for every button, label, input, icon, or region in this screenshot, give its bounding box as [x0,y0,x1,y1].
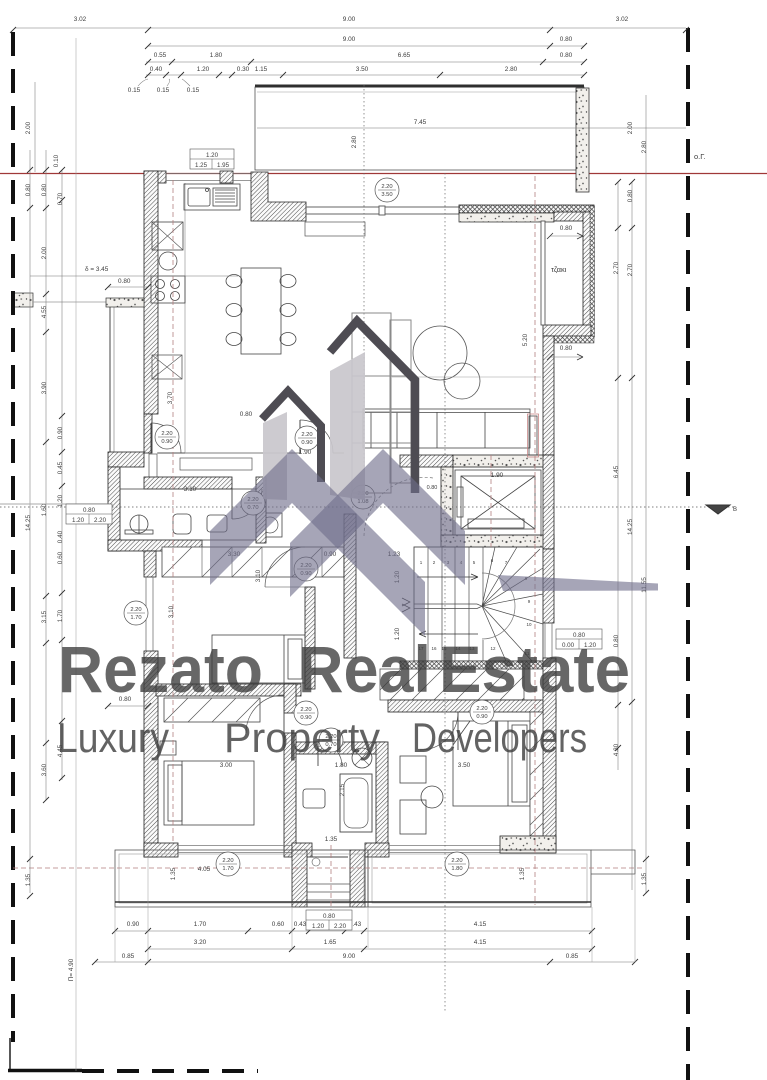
svg-text:1.95: 1.95 [217,162,230,169]
svg-text:1.20: 1.20 [206,152,219,159]
svg-text:0.55: 0.55 [154,52,167,59]
svg-text:0.80: 0.80 [560,345,573,352]
svg-text:Rezato: Rezato [58,632,263,706]
svg-text:0.80: 0.80 [560,225,573,232]
svg-text:4.15: 4.15 [474,921,487,928]
svg-text:3.50: 3.50 [356,66,369,73]
svg-text:0.80: 0.80 [627,189,634,202]
svg-text:9.00: 9.00 [343,16,356,23]
svg-text:2.15: 2.15 [339,783,346,796]
svg-text:1.20: 1.20 [312,923,325,930]
svg-text:2.20: 2.20 [451,858,462,864]
svg-text:Real: Real [298,632,431,706]
svg-text:Π= 4.90: Π= 4.90 [68,958,75,981]
svg-text:Luxury: Luxury [57,714,169,761]
svg-text:0.80: 0.80 [560,52,573,59]
svg-text:2.20: 2.20 [161,431,172,437]
svg-text:2.80: 2.80 [641,140,648,153]
svg-text:Property: Property [224,714,380,761]
svg-text:0.85: 0.85 [122,953,135,960]
svg-text:3.50: 3.50 [381,192,392,198]
svg-text:14.25: 14.25 [25,515,32,531]
svg-text:2.20: 2.20 [222,858,233,864]
svg-text:1.90: 1.90 [491,472,504,479]
svg-text:3.20: 3.20 [194,939,207,946]
svg-text:1.70: 1.70 [194,921,207,928]
svg-text:9.00: 9.00 [343,953,356,960]
svg-text:2.80: 2.80 [351,135,358,148]
svg-text:3.10: 3.10 [184,486,197,493]
svg-text:0.30: 0.30 [237,66,250,73]
svg-text:1.70: 1.70 [130,615,141,621]
svg-text:2.00: 2.00 [41,246,48,259]
svg-text:6.45: 6.45 [613,465,620,478]
svg-text:3.10: 3.10 [168,605,175,618]
svg-text:5.20: 5.20 [522,333,529,346]
svg-text:4.55: 4.55 [41,305,48,318]
svg-text:1.15: 1.15 [255,66,268,73]
svg-text:1.20: 1.20 [57,494,64,507]
svg-text:3.10: 3.10 [255,569,262,582]
svg-text:1.35: 1.35 [641,872,648,885]
svg-text:1.80: 1.80 [451,866,462,872]
svg-text:9.00: 9.00 [343,36,356,43]
svg-text:14.25: 14.25 [627,519,634,535]
svg-text:ο.Γ.: ο.Γ. [694,152,706,161]
svg-text:1.20: 1.20 [72,517,85,524]
svg-text:0.80: 0.80 [560,36,573,43]
svg-text:1.70: 1.70 [222,866,233,872]
svg-text:4.05: 4.05 [198,866,211,873]
svg-text:3.15: 3.15 [41,610,48,623]
svg-text:2.20: 2.20 [300,707,311,713]
svg-text:0.80: 0.80 [41,183,48,196]
svg-text:2.20: 2.20 [94,517,107,524]
svg-text:16: 16 [431,646,437,651]
svg-text:2.20: 2.20 [381,184,392,190]
svg-text:2.70: 2.70 [613,261,620,274]
svg-text:2.80: 2.80 [505,66,518,73]
svg-text:0.15: 0.15 [157,87,170,94]
svg-text:0.10: 0.10 [53,154,60,167]
svg-text:1.70: 1.70 [57,609,64,622]
svg-text:0.43: 0.43 [294,921,307,928]
svg-text:0.80: 0.80 [118,278,131,285]
svg-text:2.20: 2.20 [130,607,141,613]
svg-text:3.60: 3.60 [41,763,48,776]
svg-text:δ = 3.45: δ = 3.45 [85,266,109,273]
svg-text:0.70: 0.70 [57,192,64,205]
svg-text:1.80: 1.80 [210,52,223,59]
svg-text:0.60: 0.60 [272,921,285,928]
svg-text:1.65: 1.65 [324,939,337,946]
svg-text:τζακι: τζακι [551,265,567,274]
svg-text:4.15: 4.15 [474,939,487,946]
svg-text:1.35: 1.35 [325,836,338,843]
svg-text:2.20: 2.20 [476,706,487,712]
svg-text:0.45: 0.45 [57,461,64,474]
svg-text:1.80: 1.80 [335,762,348,769]
svg-text:1.35: 1.35 [170,867,177,880]
svg-text:4.30: 4.30 [613,743,620,756]
svg-text:0.40: 0.40 [150,66,163,73]
svg-text:0.80: 0.80 [427,485,438,491]
svg-text:1.60: 1.60 [41,503,48,516]
svg-text:0.40: 0.40 [57,530,64,543]
svg-text:2.00: 2.00 [25,121,32,134]
svg-text:2.20: 2.20 [334,923,347,930]
svg-text:0.85: 0.85 [566,953,579,960]
svg-text:2.00: 2.00 [627,121,634,134]
svg-text:Estate: Estate [439,632,630,706]
svg-text:7.45: 7.45 [414,119,427,126]
svg-text:0.15: 0.15 [187,87,200,94]
svg-text:0.80: 0.80 [83,507,96,514]
svg-text:6.65: 6.65 [398,52,411,59]
svg-text:3.00: 3.00 [220,762,233,769]
svg-text:0.90: 0.90 [57,426,64,439]
svg-text:0.60: 0.60 [57,551,64,564]
svg-text:0.80: 0.80 [323,913,336,920]
svg-text:10: 10 [526,622,532,627]
svg-text:2.70: 2.70 [627,263,634,276]
svg-text:3.90: 3.90 [41,381,48,394]
svg-text:B: B [733,507,737,513]
svg-text:3.02: 3.02 [616,16,629,23]
svg-text:0.15: 0.15 [128,87,141,94]
svg-text:0.90: 0.90 [301,440,312,446]
svg-text:2.20: 2.20 [301,432,312,438]
svg-text:Developers: Developers [412,714,587,761]
svg-text:0.90: 0.90 [161,439,172,445]
svg-text:1.35: 1.35 [519,867,526,880]
svg-text:0.80: 0.80 [240,411,253,418]
svg-text:1.20: 1.20 [197,66,210,73]
svg-text:1.25: 1.25 [195,162,208,169]
svg-text:0.80: 0.80 [25,183,32,196]
svg-text:3.70: 3.70 [167,391,174,404]
svg-text:0.90: 0.90 [127,921,140,928]
svg-text:3.02: 3.02 [74,16,87,23]
svg-text:3.50: 3.50 [458,762,471,769]
svg-text:1.35: 1.35 [25,873,32,886]
